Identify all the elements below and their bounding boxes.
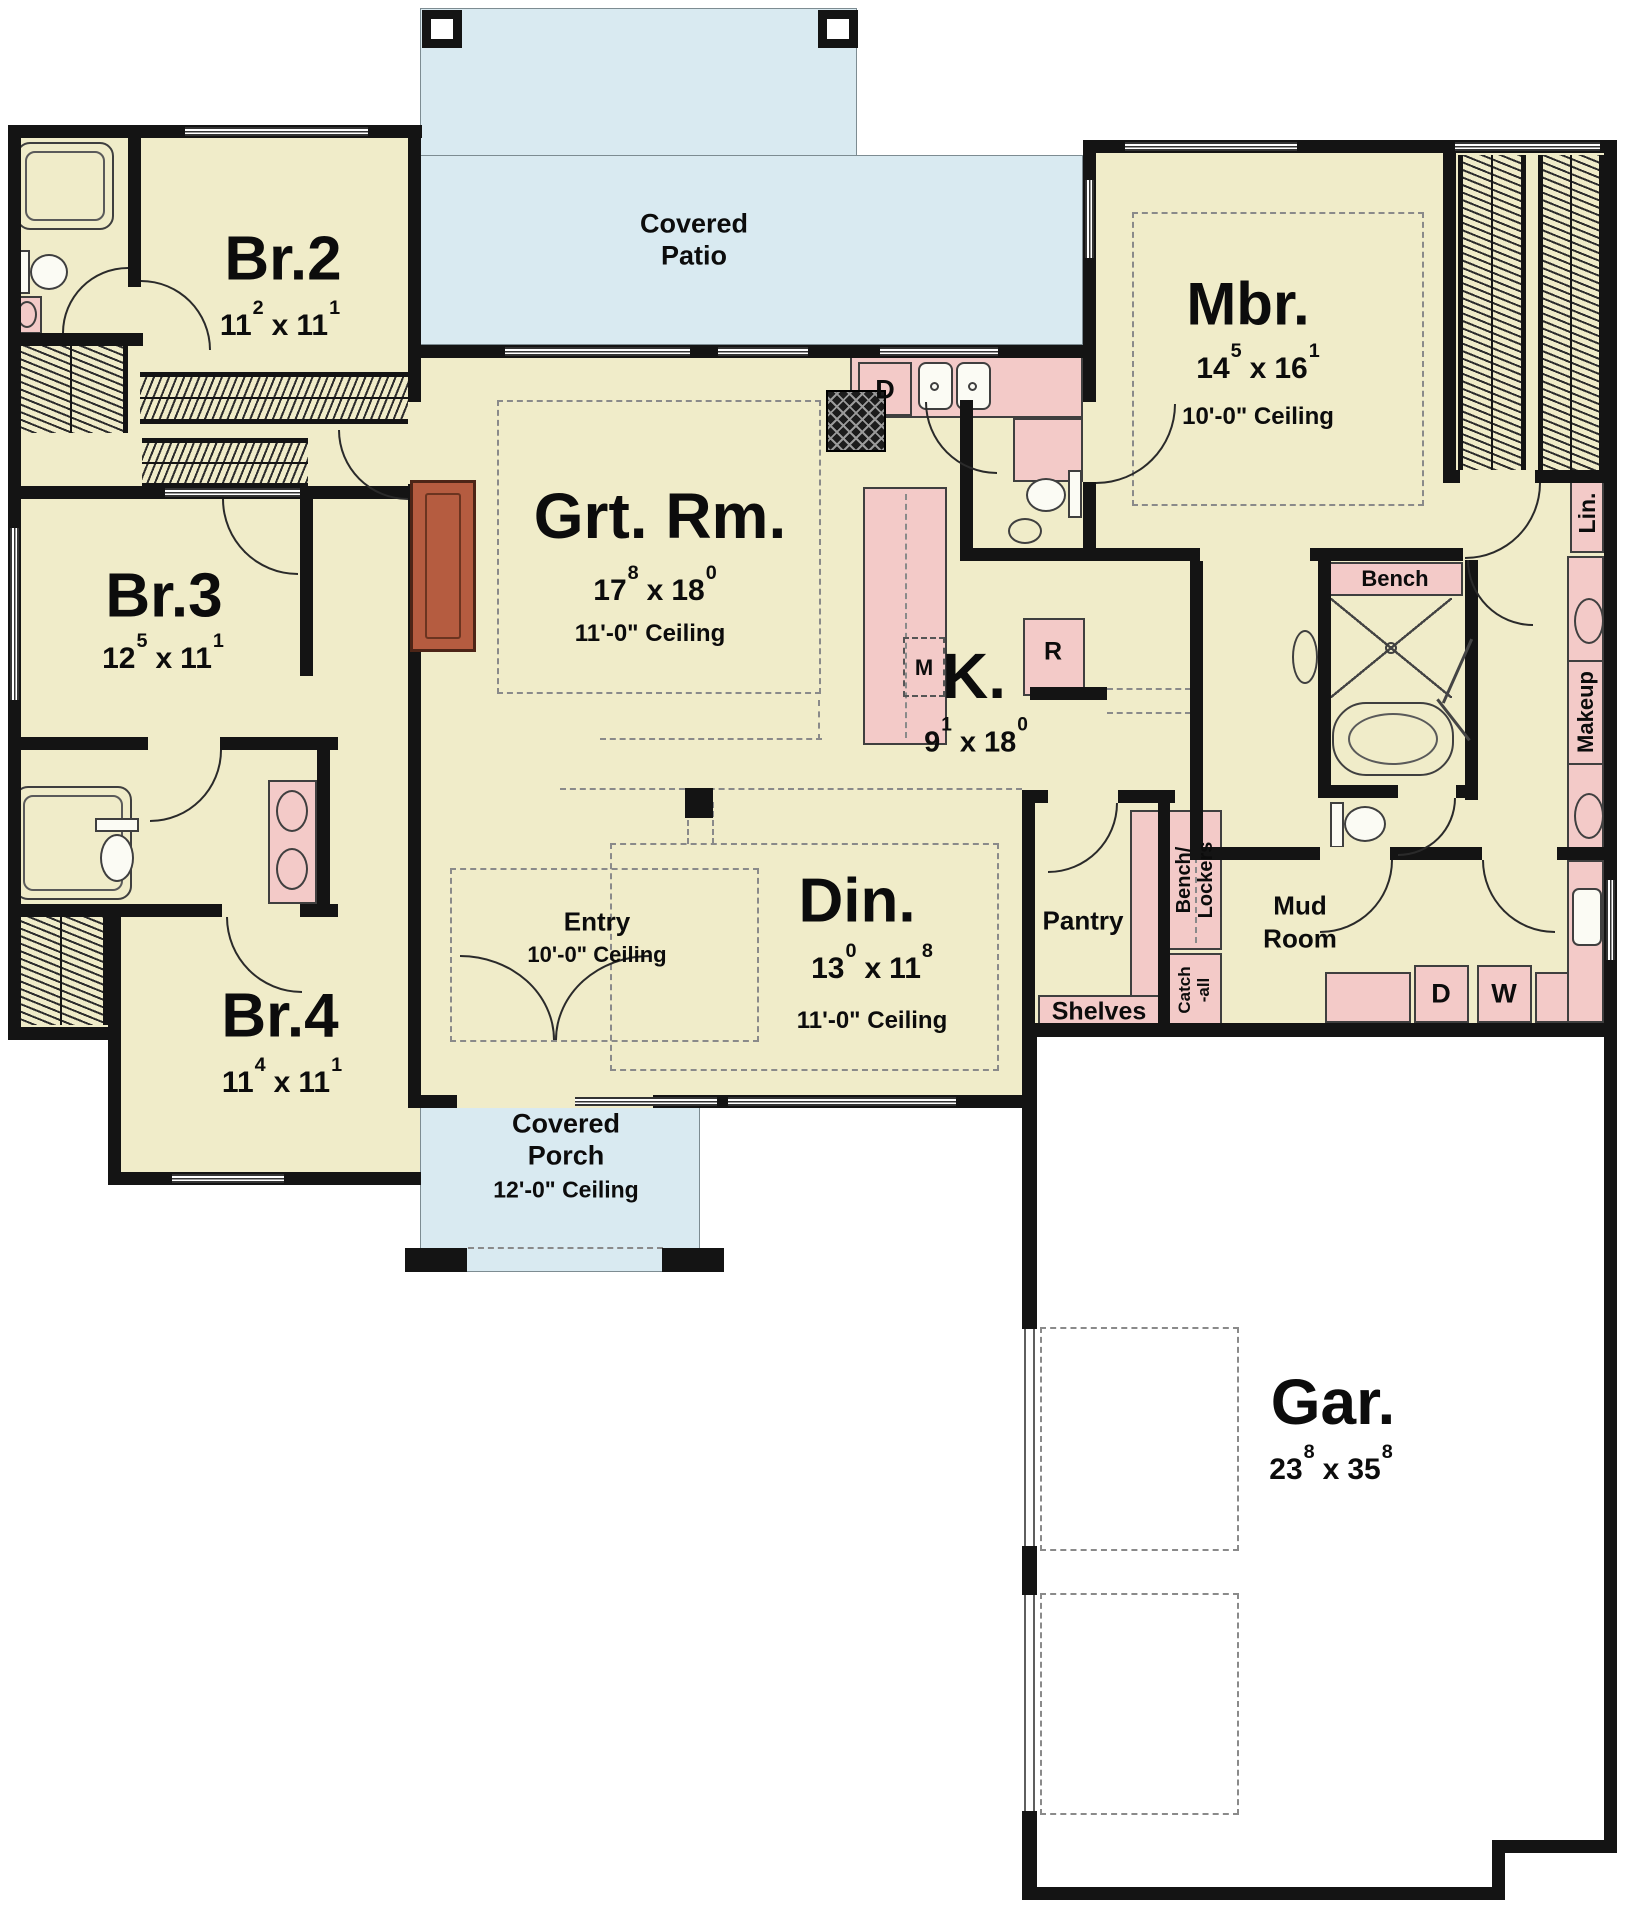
tub-inner bbox=[25, 151, 105, 221]
sink-icon bbox=[276, 848, 308, 890]
master-closet-hatch bbox=[1458, 155, 1526, 471]
tub-inner bbox=[1348, 713, 1438, 765]
patio-post bbox=[422, 10, 462, 48]
window bbox=[1125, 142, 1297, 151]
wall bbox=[1030, 687, 1107, 700]
garage-door-track-2 bbox=[1040, 1593, 1239, 1815]
room-ceiling-porch: 12'-0" Ceiling bbox=[493, 1177, 638, 1204]
door-opening bbox=[408, 402, 421, 484]
sink-icon bbox=[276, 790, 308, 832]
vanity-sink-icon bbox=[1574, 598, 1604, 644]
island-dash bbox=[905, 494, 907, 738]
window bbox=[728, 1097, 956, 1106]
closet-hatch bbox=[14, 346, 128, 433]
toilet-tank-icon bbox=[1068, 470, 1082, 518]
open-plan-dash bbox=[818, 700, 820, 740]
covered-patio-floor bbox=[420, 8, 857, 158]
door-opening bbox=[128, 287, 141, 333]
freestanding-tub-icon bbox=[1332, 702, 1454, 776]
window bbox=[1455, 142, 1600, 151]
patio-post-inner bbox=[431, 19, 453, 39]
garage-door-track-1 bbox=[1040, 1327, 1239, 1551]
sliding-door bbox=[505, 347, 690, 356]
wall bbox=[8, 333, 143, 346]
room-label-br2: Br.2 bbox=[224, 224, 341, 295]
room-label-br4: Br.4 bbox=[221, 981, 338, 1052]
master-closet-hatch bbox=[1538, 155, 1604, 471]
door-opening bbox=[1482, 847, 1557, 860]
room-ceiling-mbr: 10'-0" Ceiling bbox=[1182, 403, 1334, 431]
shower-drain-icon bbox=[1385, 642, 1397, 654]
sink-icon bbox=[1008, 518, 1042, 544]
wall bbox=[317, 737, 330, 917]
bypass-closet-door bbox=[165, 488, 300, 497]
room-label-grt-rm: Grt. Rm. bbox=[534, 479, 786, 553]
bathtub-icon bbox=[16, 142, 114, 230]
pantry-shelf-side bbox=[1130, 810, 1160, 997]
wall bbox=[1022, 1887, 1504, 1900]
garage-door-panel bbox=[1024, 1329, 1035, 1546]
room-ceiling-entry: 10'-0" Ceiling bbox=[527, 942, 666, 968]
vanity-sink-icon bbox=[1574, 793, 1604, 839]
toilet-bowl-icon bbox=[100, 834, 134, 882]
room-label-patio: Covered Patio bbox=[604, 208, 784, 273]
room-dim-br2: 112x111 bbox=[220, 307, 340, 343]
room-dim-grt-rm: 178x180 bbox=[593, 572, 716, 608]
door-opening bbox=[222, 904, 300, 917]
wall bbox=[1465, 560, 1478, 800]
cased-opening-dash bbox=[1107, 712, 1191, 714]
label-bench: Bench bbox=[1361, 566, 1428, 592]
porch-step-dash bbox=[468, 1247, 663, 1249]
window bbox=[1085, 180, 1094, 258]
wall bbox=[1022, 1546, 1037, 1595]
lin-text: Lin. bbox=[1575, 493, 1600, 534]
catch-all-line-2: -all bbox=[1195, 978, 1214, 1003]
closet-hatch bbox=[142, 438, 308, 488]
label-shelves: Shelves bbox=[1052, 998, 1147, 1027]
room-dim-br3: 125x111 bbox=[102, 640, 224, 676]
label-refrigerator: R bbox=[1044, 638, 1062, 667]
toilet-bowl-icon bbox=[1344, 806, 1386, 842]
room-label-mud: MudRoom bbox=[1263, 890, 1337, 955]
wall bbox=[1318, 560, 1331, 798]
wall bbox=[108, 917, 121, 1185]
toilet-tank-icon bbox=[95, 818, 139, 832]
fireplace-inner bbox=[425, 493, 461, 639]
closet-hatch bbox=[14, 917, 108, 1025]
label-linen: Lin. bbox=[1568, 473, 1608, 553]
room-label-porch: Covered Porch bbox=[481, 1108, 651, 1173]
pedestal-sink-icon bbox=[1292, 630, 1318, 684]
room-dim-gar: 238x358 bbox=[1269, 1451, 1392, 1487]
wall bbox=[8, 1027, 118, 1040]
wall bbox=[1443, 153, 1456, 483]
laundry-counter bbox=[1325, 972, 1411, 1023]
label-washer: W bbox=[1491, 979, 1516, 1010]
room-label-kitchen: K. bbox=[942, 639, 1006, 713]
room-label-br3: Br.3 bbox=[105, 561, 222, 632]
label-dishwasher: D bbox=[875, 375, 895, 406]
wall bbox=[1492, 1840, 1617, 1853]
room-label-entry: Entry bbox=[564, 907, 630, 938]
wall bbox=[300, 486, 313, 676]
mud-line-2: Room bbox=[1263, 922, 1337, 955]
room-ceiling-grt-rm: 11'-0" Ceiling bbox=[575, 620, 725, 648]
catch-all-line-1: Catch bbox=[1176, 966, 1195, 1013]
label-bench-lockers: Bench/Lockers bbox=[1169, 815, 1221, 945]
kitchen-island bbox=[863, 487, 947, 745]
window bbox=[880, 347, 998, 356]
porch-post bbox=[405, 1248, 467, 1272]
wall bbox=[960, 548, 1096, 561]
label-makeup: Makeup bbox=[1566, 662, 1606, 762]
toilet-bowl-icon bbox=[30, 254, 68, 290]
room-label-gar: Gar. bbox=[1271, 1365, 1396, 1439]
window bbox=[185, 127, 368, 136]
door-opening bbox=[1398, 785, 1456, 798]
room-dim-br4: 114x111 bbox=[222, 1064, 342, 1100]
room-dim-din: 130x118 bbox=[811, 950, 933, 986]
door-opening bbox=[1460, 470, 1535, 483]
porch-post bbox=[662, 1248, 724, 1272]
open-plan-dash bbox=[560, 788, 1022, 790]
toilet-bowl-icon bbox=[1026, 478, 1066, 512]
window bbox=[172, 1174, 284, 1183]
door-opening bbox=[1083, 402, 1096, 482]
toilet-tank-icon bbox=[1330, 802, 1344, 848]
wall bbox=[128, 125, 141, 287]
patio-post bbox=[818, 10, 858, 48]
door-opening bbox=[148, 737, 220, 750]
drain-icon bbox=[930, 382, 939, 391]
vanity-divider bbox=[1567, 763, 1604, 765]
wall bbox=[1022, 1037, 1037, 1329]
laundry-sink-icon bbox=[1572, 888, 1602, 946]
patio-post-inner bbox=[827, 19, 849, 39]
door-opening bbox=[1320, 847, 1390, 860]
column bbox=[685, 788, 713, 818]
drain-icon bbox=[968, 382, 977, 391]
cased-opening-dash bbox=[1107, 688, 1191, 690]
room-label-pantry: Pantry bbox=[1043, 906, 1124, 937]
window bbox=[1606, 880, 1615, 960]
garage-door-panel bbox=[1024, 1595, 1035, 1811]
fireplace-icon bbox=[410, 480, 476, 652]
bench-lockers-line-2: Lockers bbox=[1195, 842, 1217, 919]
floor-plan: Covered Patio Br.2 112x111 Br.3 125x111 … bbox=[0, 0, 1625, 1920]
label-microwave: M bbox=[915, 655, 933, 681]
room-ceiling-din: 11'-0" Ceiling bbox=[797, 1007, 947, 1035]
room-dim-mbr: 145x161 bbox=[1196, 350, 1319, 386]
room-label-mbr: Mbr. bbox=[1186, 270, 1309, 339]
closet-hatch bbox=[140, 372, 408, 424]
window bbox=[718, 347, 808, 356]
window bbox=[10, 528, 19, 700]
room-dim-kitchen: 91x180 bbox=[924, 725, 1028, 760]
wall bbox=[1604, 140, 1617, 1853]
room-label-din: Din. bbox=[798, 866, 915, 937]
door-opening bbox=[1200, 548, 1310, 561]
open-plan-dash bbox=[600, 738, 822, 740]
label-catch-all: Catch-all bbox=[1172, 954, 1218, 1026]
window bbox=[575, 1097, 717, 1106]
bench-lockers-line-1: Bench/ bbox=[1173, 847, 1195, 914]
door-opening bbox=[1048, 790, 1118, 803]
mud-line-1: Mud bbox=[1263, 890, 1337, 923]
label-dryer: D bbox=[1431, 979, 1451, 1010]
makeup-text: Makeup bbox=[1574, 671, 1598, 753]
